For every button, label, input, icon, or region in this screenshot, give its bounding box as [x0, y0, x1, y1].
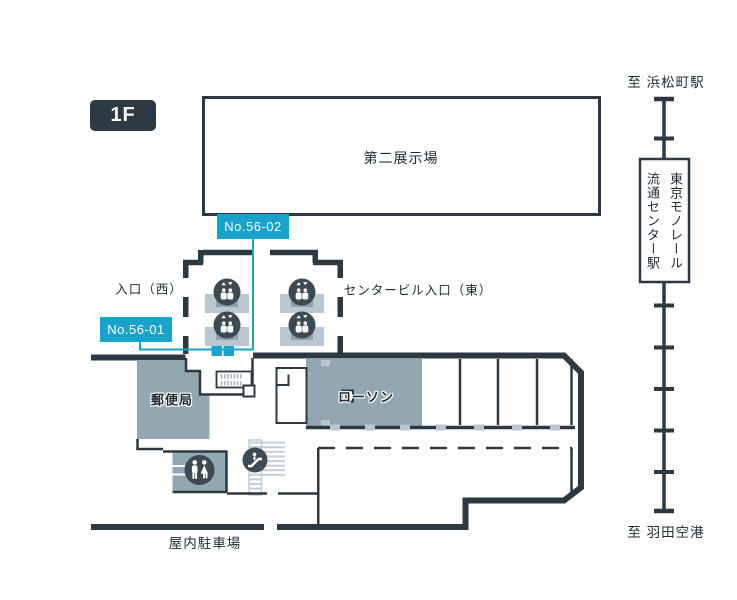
floor-badge: 1F: [90, 100, 156, 131]
elevator-icon: [205, 312, 249, 347]
booth-label-56-01: No.56-01: [100, 317, 172, 342]
floor-map: 1F 第二展示場 No.56-02 No.56-01 入口（西） センタービル入…: [0, 0, 737, 600]
to-hamamatsucho-label: 至 浜松町駅: [627, 71, 704, 91]
booth-marker: [212, 346, 223, 357]
post-office-label: 郵便局: [151, 390, 193, 409]
entrance-east-label: センタービル入口（東）: [344, 280, 493, 299]
entrance-west-label: 入口（西）: [115, 279, 183, 298]
exhibition-hall-label: 第二展示場: [364, 148, 439, 168]
bottom-right-room-walls: [318, 448, 572, 497]
lawson-label: ローソン: [338, 387, 394, 406]
station-name-line1: 東京モノレール: [668, 166, 683, 276]
escalator-area: [243, 440, 286, 495]
elevator-icon: [280, 279, 324, 314]
elevator-icon: [205, 279, 249, 314]
escalator-icon: [243, 448, 268, 473]
restroom-icon: [185, 455, 215, 485]
to-haneda-label: 至 羽田空港: [627, 521, 704, 541]
booth-marker: [224, 346, 235, 357]
east-rooms-walls: [460, 359, 572, 425]
indoor-parking-label: 屋内駐車場: [169, 532, 242, 552]
station-name-line2: 流通センター駅: [645, 166, 660, 276]
stairs-hatch: [217, 372, 255, 397]
elevator-icon: [280, 312, 324, 347]
elevator-bank: [205, 279, 324, 347]
booth-label-56-02: No.56-02: [217, 214, 289, 239]
restroom-block: [163, 452, 228, 493]
small-room-west-of-lawson: [277, 368, 307, 423]
